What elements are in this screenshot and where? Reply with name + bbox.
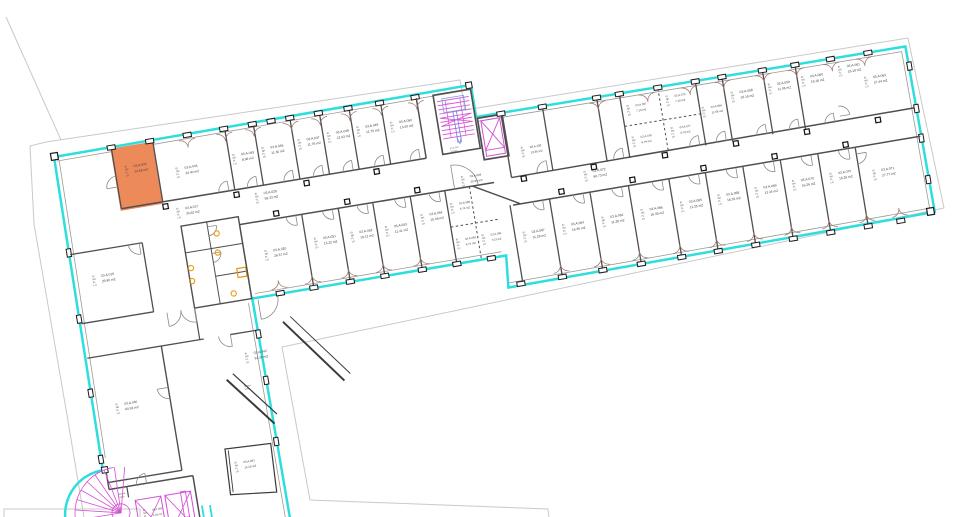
svg-text:16.29 m2: 16.29 m2	[839, 174, 853, 180]
svg-text:LH: LH	[874, 178, 878, 182]
svg-text:Netto: Netto	[444, 101, 451, 105]
svg-text:LH: LH	[802, 84, 806, 88]
svg-text:16.12 m2: 16.12 m2	[360, 233, 374, 239]
svg-text:34.62 m2: 34.62 m2	[186, 209, 200, 215]
svg-text:14.16 m2: 14.16 m2	[244, 464, 257, 470]
svg-text:LH: LH	[352, 240, 356, 244]
svg-text:LH: LH	[117, 412, 121, 416]
svg-text:15.49 m2: 15.49 m2	[430, 216, 444, 222]
svg-text:11.41 m2: 11.41 m2	[394, 228, 408, 234]
svg-text:LH: LH	[633, 145, 637, 149]
svg-text:7.03 m2: 7.03 m2	[491, 236, 502, 242]
svg-text:8.96 m2: 8.96 m2	[242, 156, 255, 162]
svg-text:LH: LH	[522, 155, 526, 159]
svg-text:LH: LH	[246, 361, 250, 365]
svg-text:16.29 m2: 16.29 m2	[801, 182, 815, 188]
svg-text:LH: LH	[233, 162, 237, 166]
svg-text:LH: LH	[263, 155, 267, 159]
svg-text:20.96 m2: 20.96 m2	[470, 178, 483, 184]
svg-text:27.44 m2: 27.44 m2	[874, 78, 888, 84]
svg-text:LH: LH	[703, 115, 707, 119]
svg-text:6.79 m2: 6.79 m2	[641, 139, 652, 145]
svg-text:LH: LH	[672, 135, 676, 139]
svg-text:LH: LH	[718, 203, 722, 207]
svg-text:LH: LH	[769, 92, 773, 96]
svg-text:LH: LH	[642, 217, 646, 221]
svg-text:LH: LH	[756, 195, 760, 199]
svg-text:29.37 m2: 29.37 m2	[274, 252, 288, 258]
svg-text:11.75 m2: 11.75 m2	[366, 128, 380, 134]
svg-text:12.03 m2: 12.03 m2	[336, 134, 350, 140]
svg-text:LH: LH	[603, 225, 607, 229]
svg-text:LH: LH	[358, 135, 362, 139]
svg-text:11.75 m2: 11.75 m2	[307, 141, 321, 147]
svg-text:6.79 m2: 6.79 m2	[680, 129, 691, 135]
svg-text:LH: LH	[830, 181, 834, 185]
svg-text:LH: LH	[93, 284, 97, 288]
svg-text:13.36 m2: 13.36 m2	[530, 149, 543, 155]
svg-text:11.25 m2: 11.25 m2	[689, 203, 703, 209]
svg-text:LH: LH	[236, 470, 240, 474]
svg-text:LH: LH	[299, 147, 303, 151]
svg-text:LH: LH	[422, 222, 426, 226]
svg-text:56.33 m2: 56.33 m2	[264, 194, 278, 200]
svg-text:16.35 m2: 16.35 m2	[650, 211, 664, 217]
svg-text:LH: LH	[256, 201, 260, 205]
svg-text:16.18 m2: 16.18 m2	[847, 67, 861, 73]
svg-text:11.58 m2: 11.58 m2	[711, 109, 723, 115]
svg-text:LH: LH	[483, 243, 487, 247]
svg-text:LH: LH	[265, 258, 269, 262]
svg-text:LH: LH	[451, 211, 455, 215]
svg-text:91.30 m2: 91.30 m2	[254, 354, 268, 360]
svg-text:LH: LH	[585, 179, 589, 183]
svg-text:LH: LH	[328, 140, 332, 144]
svg-text:LH: LH	[681, 210, 685, 214]
svg-text:6.74 m2: 6.74 m2	[460, 205, 471, 211]
svg-text:LH: LH	[177, 216, 181, 220]
svg-text:60.93 m2: 60.93 m2	[125, 405, 139, 411]
svg-text:16.16 m2: 16.16 m2	[811, 78, 825, 84]
svg-text:16.35 m2: 16.35 m2	[572, 226, 586, 232]
svg-text:LH: LH	[457, 247, 461, 251]
svg-text:LH: LH	[839, 74, 843, 78]
svg-text:11.26 m2: 11.26 m2	[611, 218, 625, 224]
svg-text:7.10 m2: 7.10 m2	[675, 98, 686, 104]
svg-text:LH: LH	[386, 234, 390, 238]
svg-text:LH: LH	[177, 176, 181, 180]
svg-text:60.73 m2: 60.73 m2	[593, 172, 607, 178]
svg-text:13.40 m2: 13.40 m2	[400, 123, 414, 129]
svg-text:LH: LH	[865, 85, 869, 89]
svg-text:LH: LH	[628, 113, 632, 117]
svg-text:LH: LH	[315, 246, 319, 250]
svg-text:LH: LH	[391, 130, 395, 134]
svg-text:16.16 m2: 16.16 m2	[740, 93, 754, 99]
svg-text:LH: LH	[667, 104, 671, 108]
svg-text:6.74 m2: 6.74 m2	[465, 241, 476, 247]
svg-text:11.26 m2: 11.26 m2	[532, 233, 546, 239]
svg-text:6.03 m2: 6.03 m2	[152, 512, 162, 517]
svg-text:LH: LH	[732, 100, 736, 104]
svg-text:25.90 m2: 25.90 m2	[102, 277, 116, 283]
svg-text:LH: LH	[524, 240, 528, 244]
svg-text:03.A.006: 03.A.006	[152, 506, 163, 512]
svg-text:27.77 m2: 27.77 m2	[882, 171, 896, 177]
svg-text:LH: LH	[462, 184, 466, 188]
svg-text:7.10 m2: 7.10 m2	[636, 107, 647, 113]
svg-text:24.40 m2: 24.40 m2	[185, 169, 199, 175]
svg-text:16.35 m2: 16.35 m2	[727, 196, 741, 202]
svg-text:11.30 m2: 11.30 m2	[271, 149, 285, 155]
svg-text:LH: LH	[563, 232, 567, 236]
svg-text:11.06 m2: 11.06 m2	[777, 85, 791, 91]
svg-text:LH: LH	[793, 188, 797, 192]
svg-text:13.22 m2: 13.22 m2	[323, 239, 337, 245]
svg-text:13.44 m2: 13.44 m2	[764, 189, 778, 195]
